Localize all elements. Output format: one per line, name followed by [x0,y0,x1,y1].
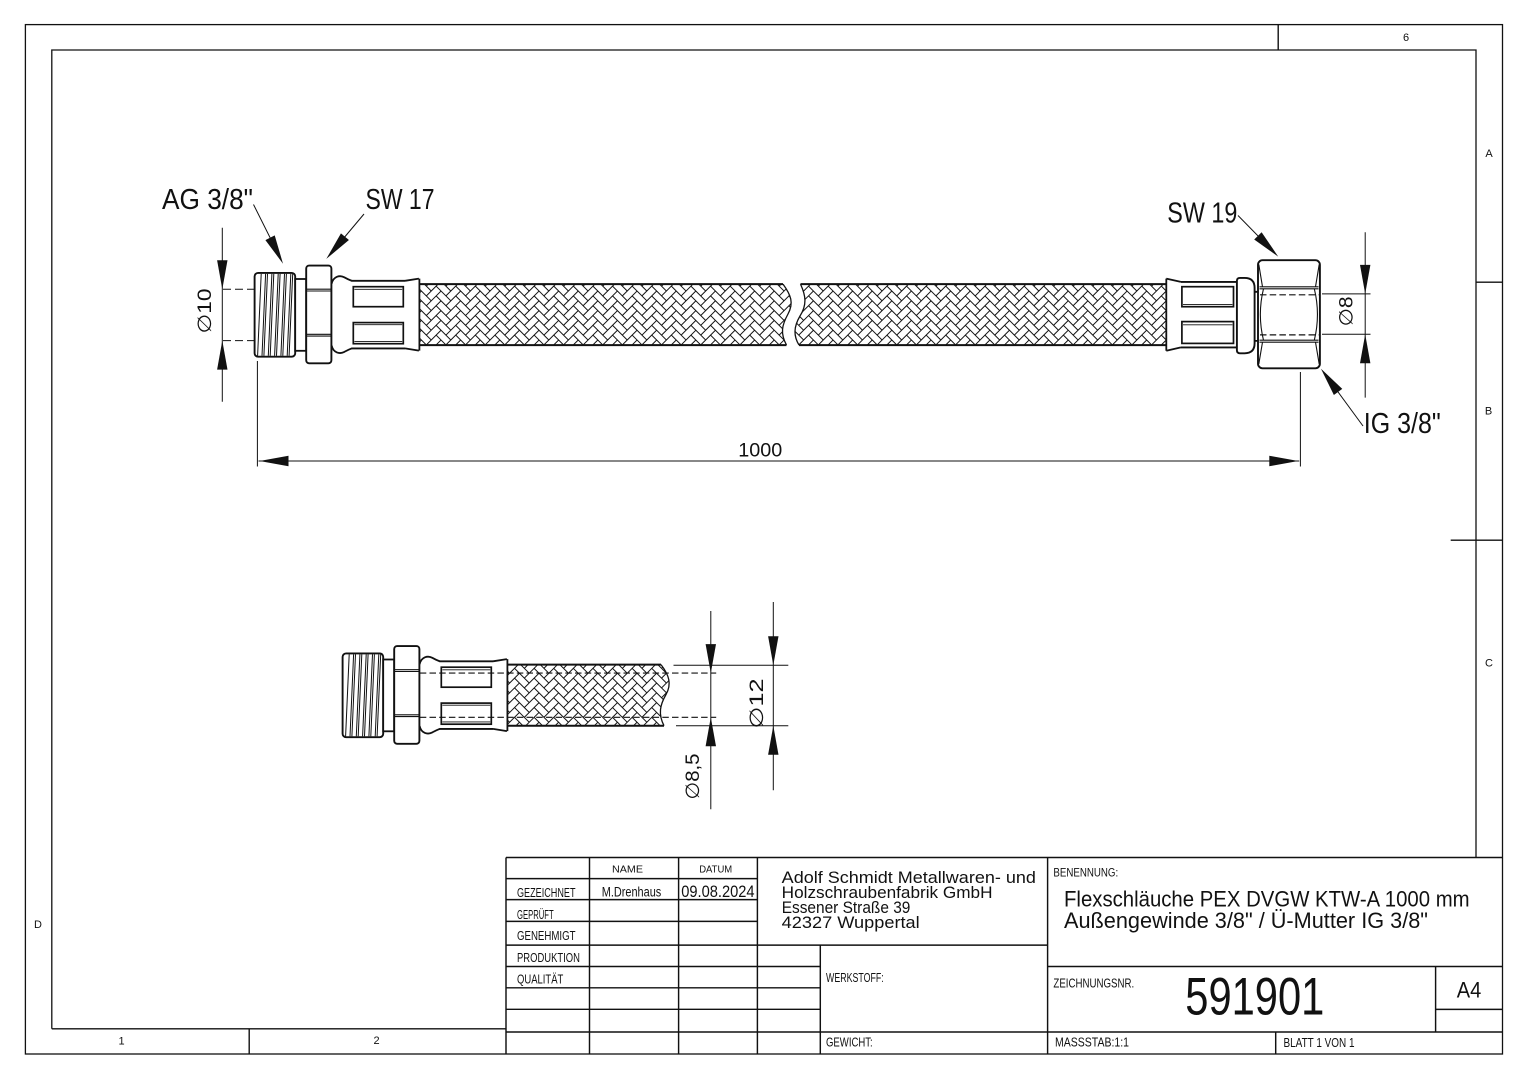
svg-text:SW 19: SW 19 [1167,198,1237,230]
svg-text:∅8,5: ∅8,5 [683,754,704,800]
svg-text:42327 Wuppertal: 42327 Wuppertal [782,914,920,932]
svg-text:WERKSTOFF:: WERKSTOFF: [826,970,884,985]
svg-text:MASSSTAB:1:1: MASSSTAB:1:1 [1055,1036,1129,1050]
svg-text:591901: 591901 [1185,968,1324,1027]
svg-text:∅10: ∅10 [195,289,216,334]
svg-text:A: A [1485,148,1493,160]
svg-text:C: C [1485,657,1493,669]
svg-text:D: D [34,919,42,931]
svg-text:GEPRÜFT: GEPRÜFT [517,908,554,922]
svg-text:GEWICHT:: GEWICHT: [826,1035,873,1050]
svg-text:SW 17: SW 17 [366,184,435,216]
svg-text:2: 2 [373,1035,379,1047]
svg-text:BLATT 1 VON 1: BLATT 1 VON 1 [1284,1036,1355,1050]
svg-text:1: 1 [118,1035,124,1047]
svg-text:IG 3/8": IG 3/8" [1364,408,1441,440]
svg-text:∅12: ∅12 [747,679,768,729]
svg-text:6: 6 [1403,32,1409,44]
svg-text:M.Drenhaus: M.Drenhaus [602,884,662,899]
svg-text:∅8: ∅8 [1336,296,1357,326]
svg-text:1000: 1000 [738,441,782,462]
svg-text:Außengewinde 3/8" / Ü-Mutter I: Außengewinde 3/8" / Ü-Mutter IG 3/8" [1064,908,1428,933]
svg-text:GEZEICHNET: GEZEICHNET [517,886,576,900]
svg-text:QUALITÄT: QUALITÄT [517,973,564,987]
svg-text:GENEHMIGT: GENEHMIGT [517,929,576,943]
svg-text:PRODUKTION: PRODUKTION [517,951,580,965]
svg-text:ZEICHNUNGSNR.: ZEICHNUNGSNR. [1053,977,1134,991]
svg-text:DATUM: DATUM [699,864,732,876]
svg-text:09.08.2024: 09.08.2024 [681,882,754,901]
svg-text:BENENNUNG:: BENENNUNG: [1053,868,1118,880]
svg-text:AG 3/8": AG 3/8" [162,184,253,216]
svg-text:NAME: NAME [612,864,643,876]
svg-text:A4: A4 [1457,978,1482,1003]
svg-text:B: B [1485,405,1492,417]
